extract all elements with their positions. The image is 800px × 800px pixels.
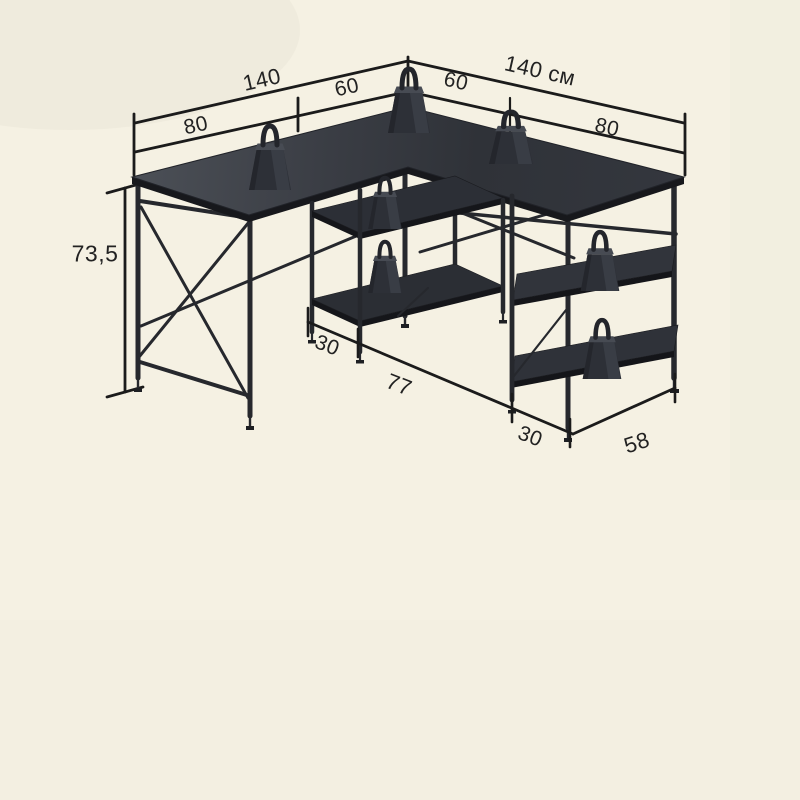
dim-label-right-overhang: 80 <box>592 114 621 143</box>
dimension-diagram: 140 60 60 140 см 80 80 73,5 30 77 30 58 <box>0 0 800 800</box>
dim-label-right-depth: 60 <box>441 68 470 97</box>
desk-illustration <box>0 0 800 800</box>
dim-label-height: 73,5 <box>72 241 119 268</box>
